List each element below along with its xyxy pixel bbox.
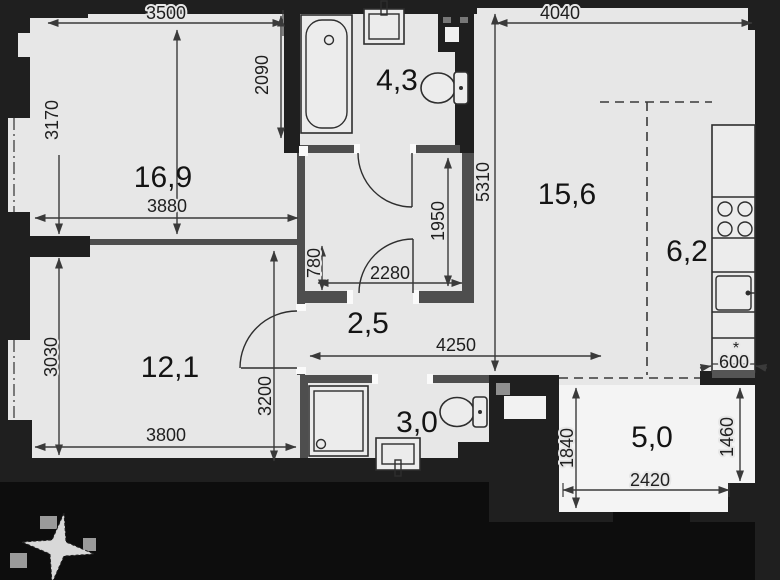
room-label-balcony: 5,0	[631, 421, 673, 454]
shower-sink-icon	[376, 438, 420, 476]
toilet2-icon	[440, 397, 487, 427]
dim-balcony-width: 2420	[630, 470, 670, 490]
dim-wall-offset: 780	[304, 248, 324, 278]
room-label-bedroom: 12,1	[141, 351, 199, 384]
dim-bedroom-height-left: 3030	[41, 337, 61, 377]
dim-right-top-width: 4040	[540, 3, 580, 23]
dim-living-top-width: 3500	[146, 3, 186, 23]
dim-balcony-height-right: 1460	[717, 417, 737, 457]
bathtub-icon	[301, 15, 352, 133]
floor-plan-svg: 3500 4040 2090 3170 3880 5310 1950 2280 …	[0, 0, 780, 580]
room-label-hallway: 2,5	[347, 307, 389, 340]
dim-inner-hall-width: 2280	[370, 263, 410, 283]
room-label-shower-room: 3,0	[396, 406, 438, 439]
toilet-icon	[421, 72, 468, 104]
dim-living-bottom-width: 3880	[147, 196, 187, 216]
room-label-bathroom: 4,3	[376, 64, 418, 97]
dim-corridor-span: 4250	[436, 335, 476, 355]
dim-inner-hall-height: 1950	[428, 201, 448, 241]
dim-counter-note: *	[733, 340, 739, 357]
dim-living-height: 3170	[42, 100, 62, 140]
shower-icon	[309, 386, 368, 456]
dim-bedroom-height-right: 3200	[255, 376, 275, 416]
vent-shaft	[438, 13, 473, 52]
room-label-living: 16,9	[134, 161, 192, 194]
dim-balcony-height-left: 1840	[557, 428, 577, 468]
dim-right-side-height: 5310	[473, 162, 493, 202]
dim-bedroom-width: 3800	[146, 425, 186, 445]
floor-plan: 3500 4040 2090 3170 3880 5310 1950 2280 …	[0, 0, 780, 580]
room-label-kitchen-living: 15,6	[538, 178, 596, 211]
room-label-kitchen-zone: 6,2	[666, 235, 708, 268]
dim-bath-depth: 2090	[252, 55, 272, 95]
